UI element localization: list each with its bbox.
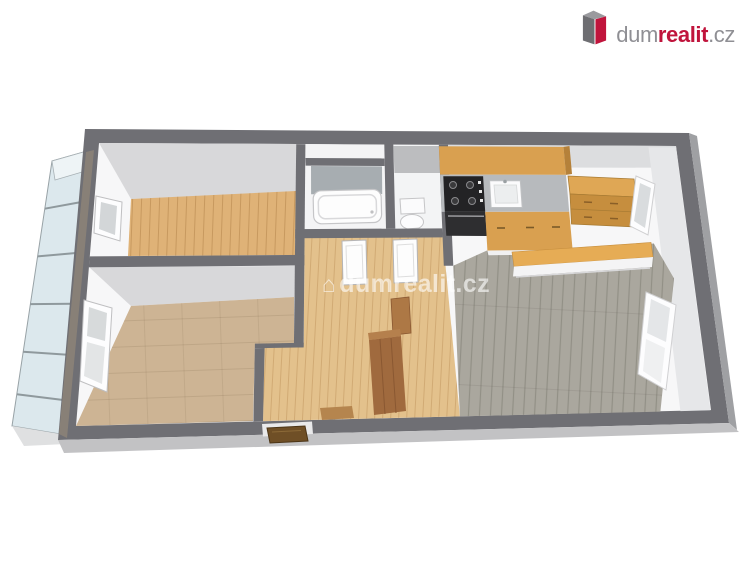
floor-plan-rendering bbox=[0, 0, 749, 562]
entrance-door bbox=[262, 422, 313, 444]
wall-notch-horizontal bbox=[255, 343, 304, 348]
sideboard bbox=[568, 176, 638, 227]
bedroom-1-window-icon bbox=[94, 196, 122, 241]
wc-niche bbox=[394, 146, 441, 173]
wall-notch-vertical bbox=[253, 348, 264, 421]
interior-door-icon bbox=[342, 240, 367, 285]
hallway-doormat bbox=[320, 406, 354, 420]
bedroom-2-window-icon bbox=[80, 300, 112, 392]
logo-text: dumrealit.cz bbox=[616, 24, 735, 46]
logo-prefix: dum bbox=[616, 22, 658, 47]
kitchen-upper-cabinets bbox=[439, 146, 566, 175]
bathtub bbox=[313, 189, 382, 224]
logo-suffix: .cz bbox=[708, 22, 735, 47]
interior-door-icon bbox=[393, 239, 418, 283]
dumrealit-logo: dumrealit.cz bbox=[580, 8, 735, 46]
floorplan-page: ⌂ dumrealit.cz dumrealit.cz bbox=[0, 0, 749, 562]
wardrobe bbox=[368, 329, 406, 415]
hallway-chest bbox=[391, 297, 411, 335]
sink-icon bbox=[490, 180, 523, 208]
kitchen-lower-cabinets bbox=[485, 212, 572, 251]
bathroom-top-partition bbox=[306, 158, 385, 166]
bedroom-1-floor-planks bbox=[128, 191, 296, 256]
wall-bathroom-bottom bbox=[295, 228, 443, 238]
wc bbox=[393, 145, 442, 240]
stove-icon bbox=[443, 176, 487, 236]
wall-between-bedrooms bbox=[89, 255, 305, 267]
bathroom bbox=[305, 144, 386, 229]
logo-building-icon bbox=[580, 8, 609, 46]
bedroom-1-far-wall-shade bbox=[99, 143, 296, 199]
logo-highlight: realit bbox=[658, 22, 708, 47]
